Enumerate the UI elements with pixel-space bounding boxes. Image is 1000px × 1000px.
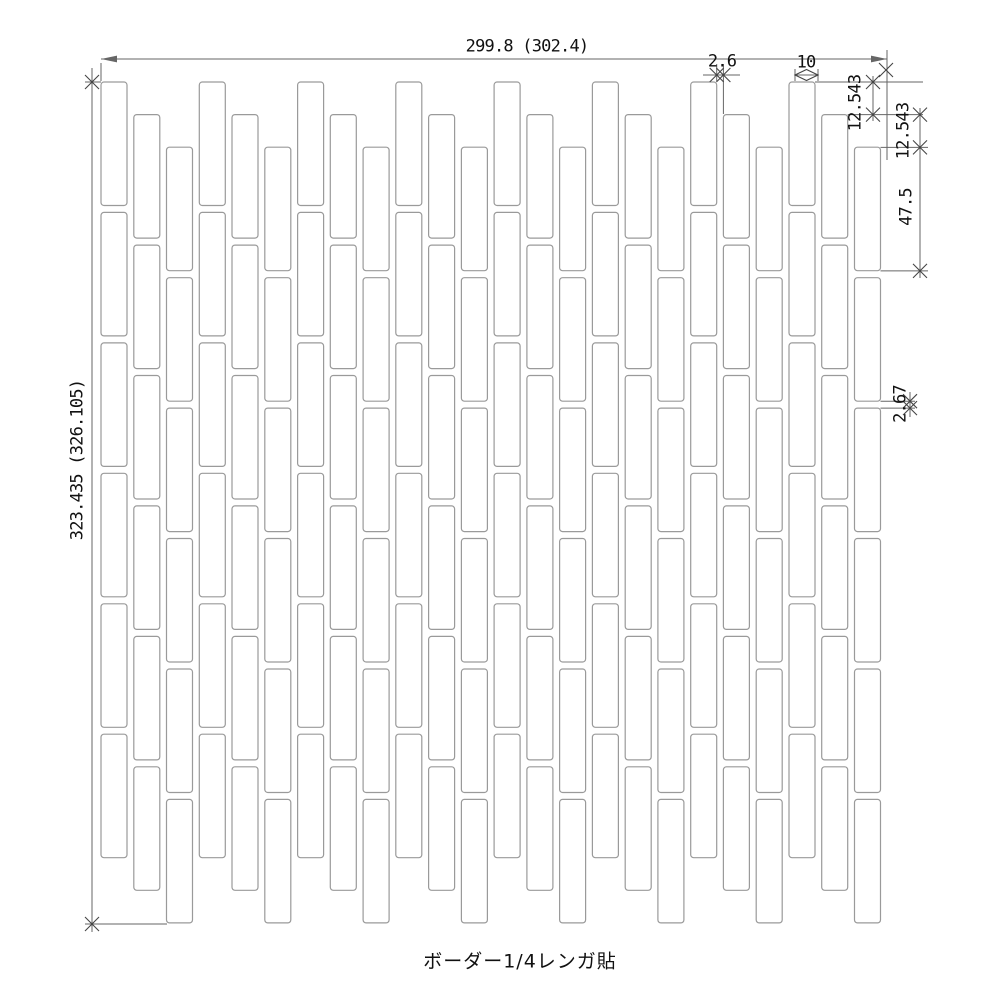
tile: [461, 669, 487, 793]
tile: [298, 473, 324, 597]
tile: [723, 636, 749, 760]
tile: [396, 604, 422, 728]
tile: [429, 506, 455, 630]
tile: [134, 115, 160, 239]
tile: [592, 734, 618, 858]
tile: [691, 604, 717, 728]
tile: [134, 636, 160, 760]
tile: [298, 604, 324, 728]
tile: [658, 147, 684, 271]
tile: [461, 408, 487, 531]
tile: [560, 669, 586, 793]
tile: [789, 604, 815, 728]
dimension-arrow: [871, 56, 887, 63]
tile: [822, 636, 848, 760]
tile: [855, 669, 881, 793]
tile: [265, 669, 291, 793]
tile: [265, 278, 291, 402]
tile: [822, 767, 848, 891]
tile: [658, 408, 684, 531]
tile: [429, 245, 455, 369]
tile: [789, 82, 815, 206]
tile: [101, 734, 127, 858]
tile: [756, 147, 782, 271]
tile: [429, 376, 455, 500]
tile: [658, 669, 684, 793]
tile: [429, 636, 455, 760]
tile: [232, 245, 258, 369]
tile: [756, 799, 782, 923]
tile: [363, 669, 389, 793]
tile: [330, 115, 356, 239]
tile: [265, 799, 291, 923]
tile: [396, 473, 422, 597]
tile: [592, 604, 618, 728]
tile: [363, 539, 389, 663]
tile: [691, 212, 717, 336]
tile: [101, 82, 127, 206]
tile: [167, 539, 193, 663]
tile-height-dimension-label: 47.5: [899, 188, 916, 226]
tile: [396, 734, 422, 858]
tile: [527, 115, 553, 239]
vertical-joint-dimension-label: 2.67: [893, 385, 910, 423]
tile: [167, 147, 193, 271]
tile: [592, 212, 618, 336]
tile: [691, 343, 717, 467]
tile: [199, 343, 225, 467]
tile: [691, 734, 717, 858]
tile: [560, 539, 586, 663]
tile: [461, 278, 487, 402]
tile: [396, 212, 422, 336]
tile: [167, 799, 193, 923]
tile: [330, 636, 356, 760]
tile: [232, 636, 258, 760]
tile: [527, 245, 553, 369]
tile: [232, 376, 258, 500]
tile: [855, 799, 881, 923]
tile: [330, 376, 356, 500]
tile: [592, 82, 618, 206]
tile: [265, 147, 291, 271]
tile: [560, 408, 586, 531]
tile: [298, 343, 324, 467]
tile: [134, 376, 160, 500]
tile: [199, 82, 225, 206]
tile: [691, 473, 717, 597]
tile: [855, 278, 881, 402]
tile: [167, 669, 193, 793]
tile: [756, 408, 782, 531]
tile: [461, 147, 487, 271]
overall-height-dimension-label: 323.435 (326.105): [70, 380, 87, 540]
tile: [756, 669, 782, 793]
tile: [789, 473, 815, 597]
drawing-caption: ボーダー1/4レンガ貼: [423, 947, 617, 974]
tile: [494, 343, 520, 467]
tile: [494, 82, 520, 206]
tile: [494, 604, 520, 728]
tile: [265, 408, 291, 531]
tile: [298, 212, 324, 336]
tile: [199, 473, 225, 597]
tile: [363, 799, 389, 923]
tile-pattern-svg: [0, 0, 1000, 1000]
tile: [232, 767, 258, 891]
tile: [494, 473, 520, 597]
tile: [560, 799, 586, 923]
tile: [298, 82, 324, 206]
tile: [101, 604, 127, 728]
tile: [134, 767, 160, 891]
tile: [461, 539, 487, 663]
tile: [330, 506, 356, 630]
tile: [494, 734, 520, 858]
tile: [330, 245, 356, 369]
tile: [527, 636, 553, 760]
tile: [527, 376, 553, 500]
tile: [232, 506, 258, 630]
tile: [199, 734, 225, 858]
tile-width-dimension-label: 10: [797, 55, 816, 72]
tile: [625, 767, 651, 891]
overall-width-dimension-label: 299.8 (302.4): [466, 39, 589, 56]
tile: [429, 767, 455, 891]
tile: [691, 82, 717, 206]
tile: [658, 278, 684, 402]
tile: [822, 376, 848, 500]
tile: [363, 278, 389, 402]
tile: [855, 147, 881, 271]
tile: [527, 506, 553, 630]
tile: [789, 734, 815, 858]
tile: [723, 245, 749, 369]
tile: [396, 343, 422, 467]
tile: [167, 408, 193, 531]
tile: [429, 115, 455, 239]
horizontal-joint-dimension-label: 2.6: [708, 54, 736, 71]
tile: [789, 212, 815, 336]
tile: [625, 115, 651, 239]
tile: [789, 343, 815, 467]
tile: [298, 734, 324, 858]
tile: [723, 376, 749, 500]
tile: [560, 278, 586, 402]
tile: [855, 408, 881, 531]
tile: [723, 115, 749, 239]
tile: [625, 506, 651, 630]
tile: [625, 376, 651, 500]
tile: [756, 278, 782, 402]
tile: [822, 115, 848, 239]
tile: [560, 147, 586, 271]
tile: [134, 245, 160, 369]
stagger-offset-dimension-label-1: 12.543: [848, 75, 865, 132]
tile: [461, 799, 487, 923]
drawing-canvas: 299.8 (302.4) 2.6 10 12.543 12.543 47.5 …: [0, 0, 1000, 1000]
tile: [363, 147, 389, 271]
tile: [363, 408, 389, 531]
tile: [101, 473, 127, 597]
tile: [723, 506, 749, 630]
tile: [330, 767, 356, 891]
tile: [756, 539, 782, 663]
tile: [167, 278, 193, 402]
tile: [658, 799, 684, 923]
tile: [822, 245, 848, 369]
tile: [199, 604, 225, 728]
tile: [855, 539, 881, 663]
tile: [265, 539, 291, 663]
tile: [723, 767, 749, 891]
stagger-offset-dimension-label-2: 12.543: [896, 103, 913, 160]
tile: [592, 343, 618, 467]
tile: [527, 767, 553, 891]
tile: [396, 82, 422, 206]
tile: [822, 506, 848, 630]
tile: [625, 245, 651, 369]
tile: [658, 539, 684, 663]
dimension-arrow: [101, 56, 117, 63]
tile: [101, 212, 127, 336]
tile: [134, 506, 160, 630]
tile: [232, 115, 258, 239]
tile: [625, 636, 651, 760]
tile: [592, 473, 618, 597]
tile: [199, 212, 225, 336]
tile: [101, 343, 127, 467]
tile: [494, 212, 520, 336]
